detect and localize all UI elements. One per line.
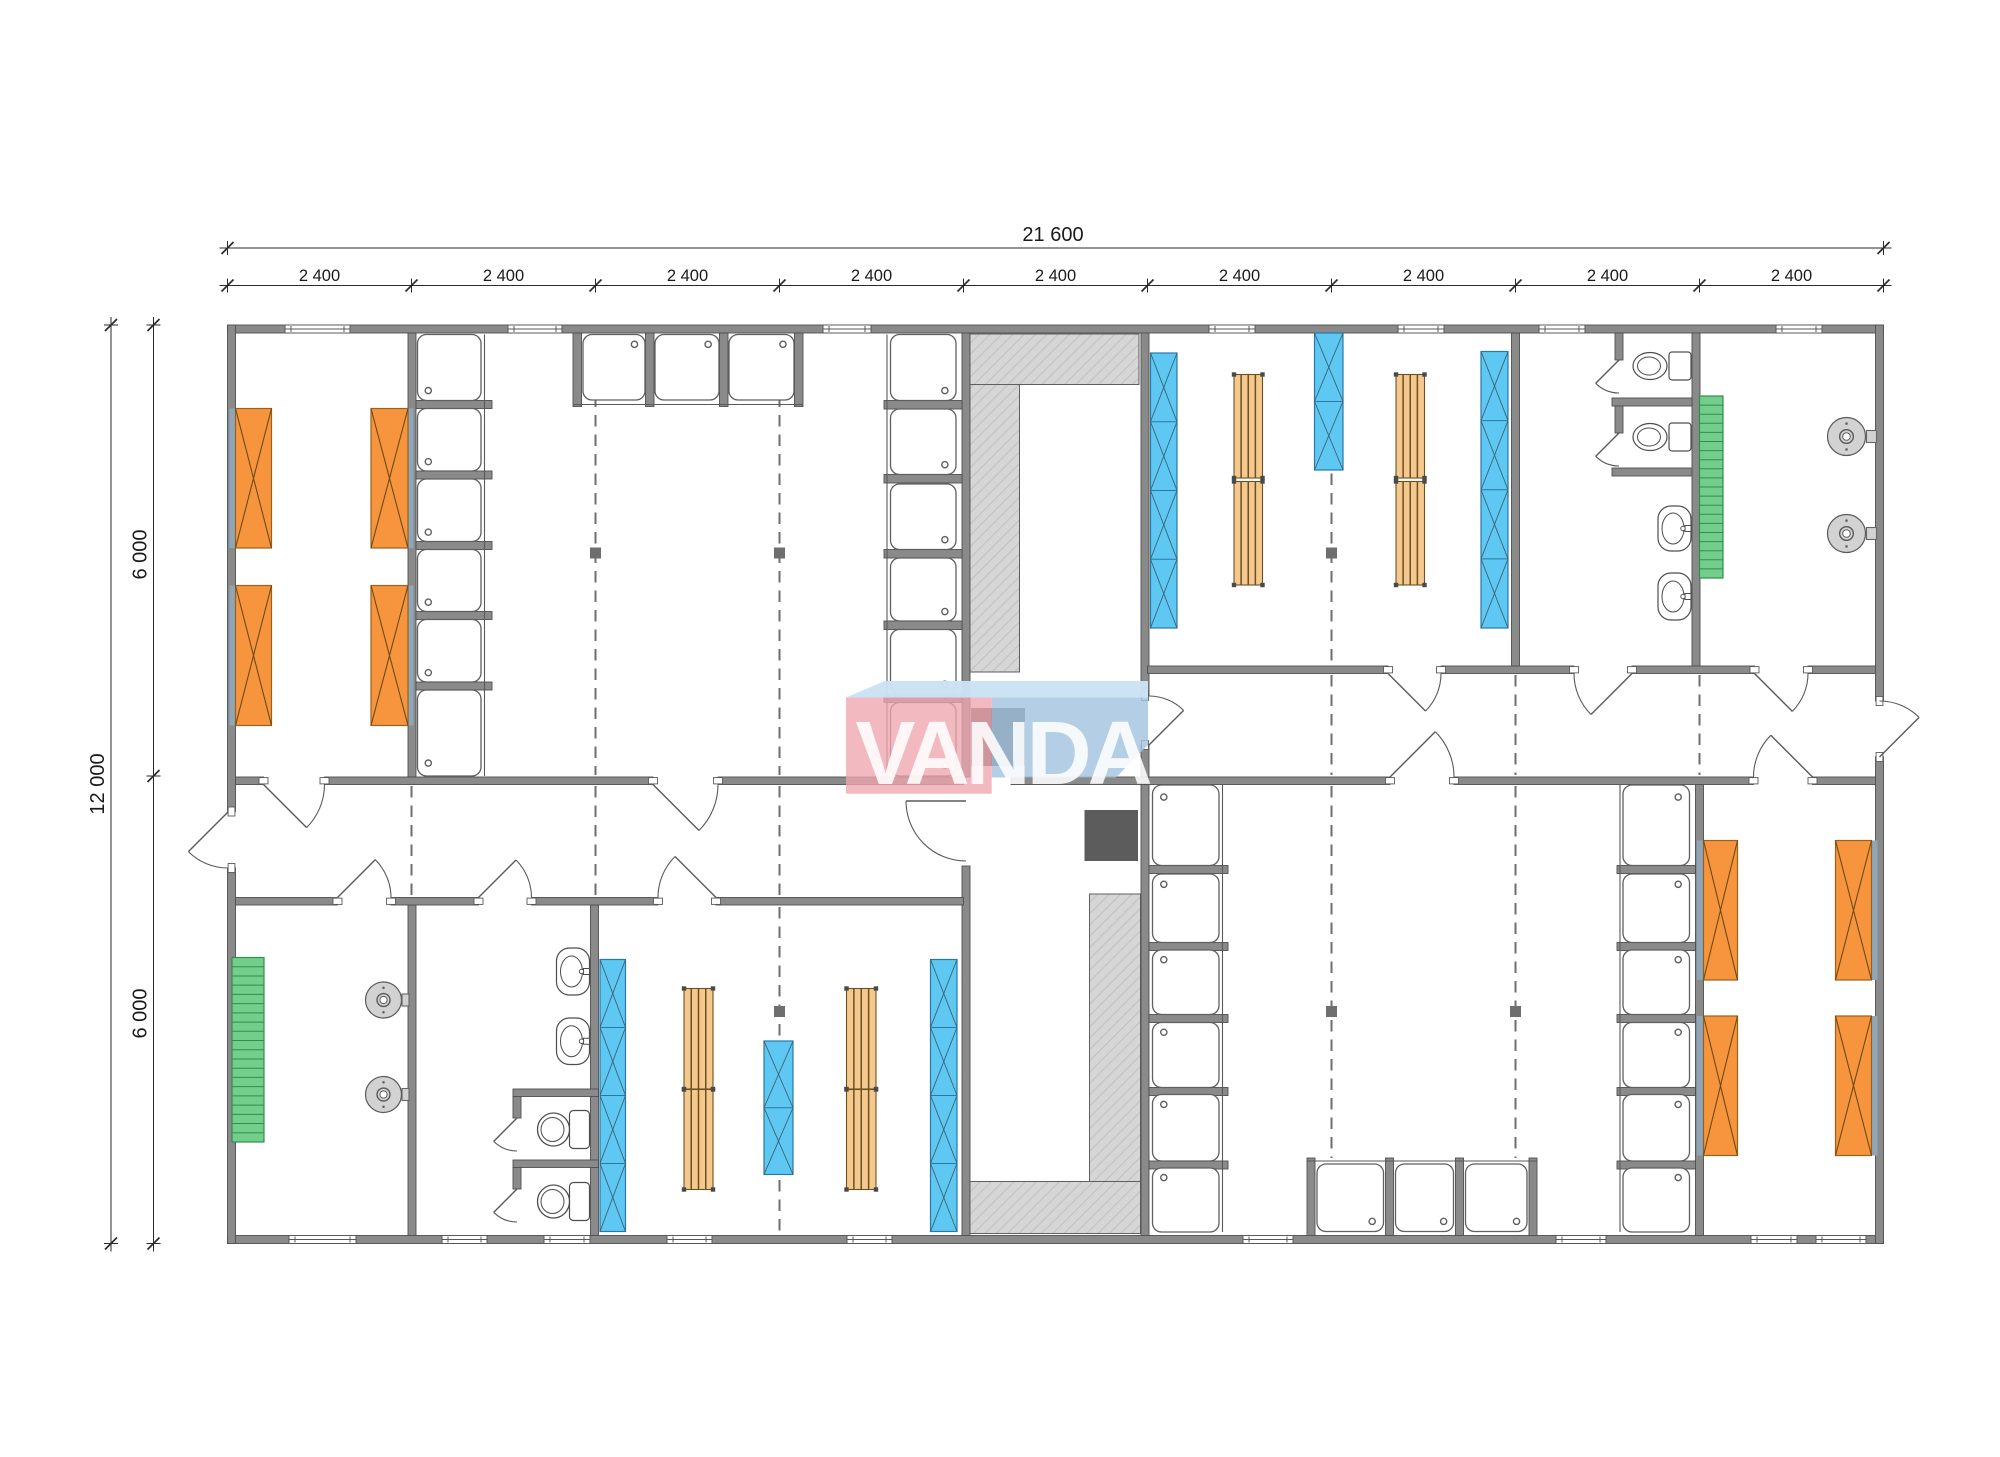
svg-text:2 400: 2 400 [483, 267, 524, 285]
svg-text:12 000: 12 000 [87, 753, 109, 814]
svg-text:2 400: 2 400 [299, 267, 340, 285]
svg-text:2 400: 2 400 [1219, 267, 1260, 285]
svg-text:VANDA: VANDA [855, 704, 1150, 804]
svg-text:2 400: 2 400 [667, 267, 708, 285]
svg-text:2 400: 2 400 [1403, 267, 1444, 285]
svg-text:6 000: 6 000 [130, 529, 152, 579]
svg-text:6 000: 6 000 [130, 988, 152, 1038]
svg-text:2 400: 2 400 [1771, 267, 1812, 285]
svg-text:21 600: 21 600 [1022, 224, 1083, 246]
svg-text:2 400: 2 400 [1035, 267, 1076, 285]
svg-text:2 400: 2 400 [1587, 267, 1628, 285]
svg-text:2 400: 2 400 [851, 267, 892, 285]
